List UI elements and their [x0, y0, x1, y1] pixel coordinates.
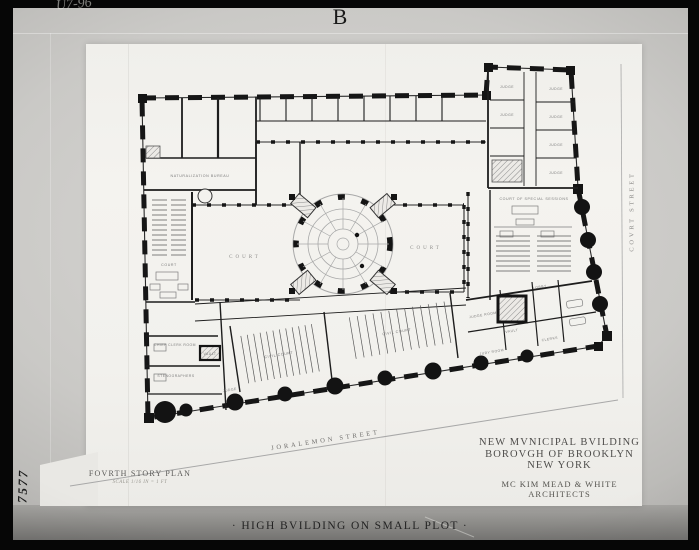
architects-line1: MC KIM MEAD & WHITE	[452, 479, 667, 489]
label-judge-room: JUDGE ROOM	[469, 311, 497, 320]
handwritten-mark-side: 7577	[14, 451, 32, 522]
label-court-right: COURT	[410, 246, 442, 251]
lower-left-offices	[146, 302, 226, 410]
bench-rows	[496, 236, 571, 271]
building-outline	[138, 63, 612, 423]
photograph-plate: { "photo": { "plate_letter": "B", "capti…	[0, 0, 699, 550]
main-corridor	[195, 288, 466, 321]
label-judge-wing-5: JUDGE	[549, 143, 563, 147]
building-name-line1: NEW MVNICIPAL BVILDING	[452, 437, 667, 449]
plan-title: FOVRTH STORY PLAN	[70, 469, 210, 478]
northwest-wing	[144, 97, 256, 205]
label-special-sessions: COURT OF SPECIAL SESSIONS	[499, 197, 568, 201]
street-label-court: COVRT STREET	[629, 146, 636, 278]
plate-caption: · HIGH BVILDING ON SMALL PLOT ·	[174, 520, 526, 532]
label-court-left: COURT	[229, 255, 261, 260]
architects-line2: ARCHITECTS	[452, 489, 667, 499]
building-name-line3: NEW YORK	[452, 460, 667, 472]
label-vault-2: VAULT	[505, 328, 518, 334]
plan-scale: SCALE 1/16 IN = 1 FT	[70, 480, 210, 485]
label-judge-wing-1: JUDGE	[500, 85, 514, 89]
left-courtroom	[146, 192, 195, 302]
label-judge-wing-6: JUDGE	[549, 171, 563, 175]
building-name-line2: BOROVGH OF BROOKLYN	[452, 449, 667, 461]
label-stenographers: STENOGRAPHERS	[157, 374, 194, 378]
stair-core	[498, 296, 526, 322]
south-courtroom-a	[230, 324, 319, 392]
left-court	[192, 205, 300, 300]
title-block: NEW MVNICIPAL BVILDING BOROVGH OF BROOKL…	[452, 437, 667, 499]
top-office-band	[256, 96, 486, 205]
label-judge-wing-2: JUDGE	[500, 113, 514, 117]
rotunda	[289, 194, 397, 295]
round-vestibule	[198, 189, 212, 203]
label-chief-clerk-room: CHIEF CLERK ROOM	[154, 343, 196, 347]
bench-rows	[152, 200, 186, 255]
label-naturalization-bureau: NATURALIZATION BUREAU	[171, 174, 230, 178]
label-vault: VAULT	[204, 352, 217, 356]
label-jury-room: JURY ROOM	[479, 348, 504, 356]
label-civil-court-a: CIVIL COURT	[264, 351, 294, 360]
special-sessions-courtroom	[466, 190, 608, 312]
label-judge-wing-4: JUDGE	[549, 115, 563, 119]
label-judge-wing-3: JUDGE	[549, 87, 563, 91]
label-clerks: CLERKS	[541, 336, 558, 343]
plate-letter: B	[300, 4, 380, 30]
plan-title-block: FOVRTH STORY PLAN SCALE 1/16 IN = 1 FT	[70, 469, 210, 485]
corner-piers	[138, 63, 612, 423]
label-civil-court-b: CIVIL COURT	[382, 328, 412, 337]
label-left-courtroom: COURT	[161, 263, 177, 267]
